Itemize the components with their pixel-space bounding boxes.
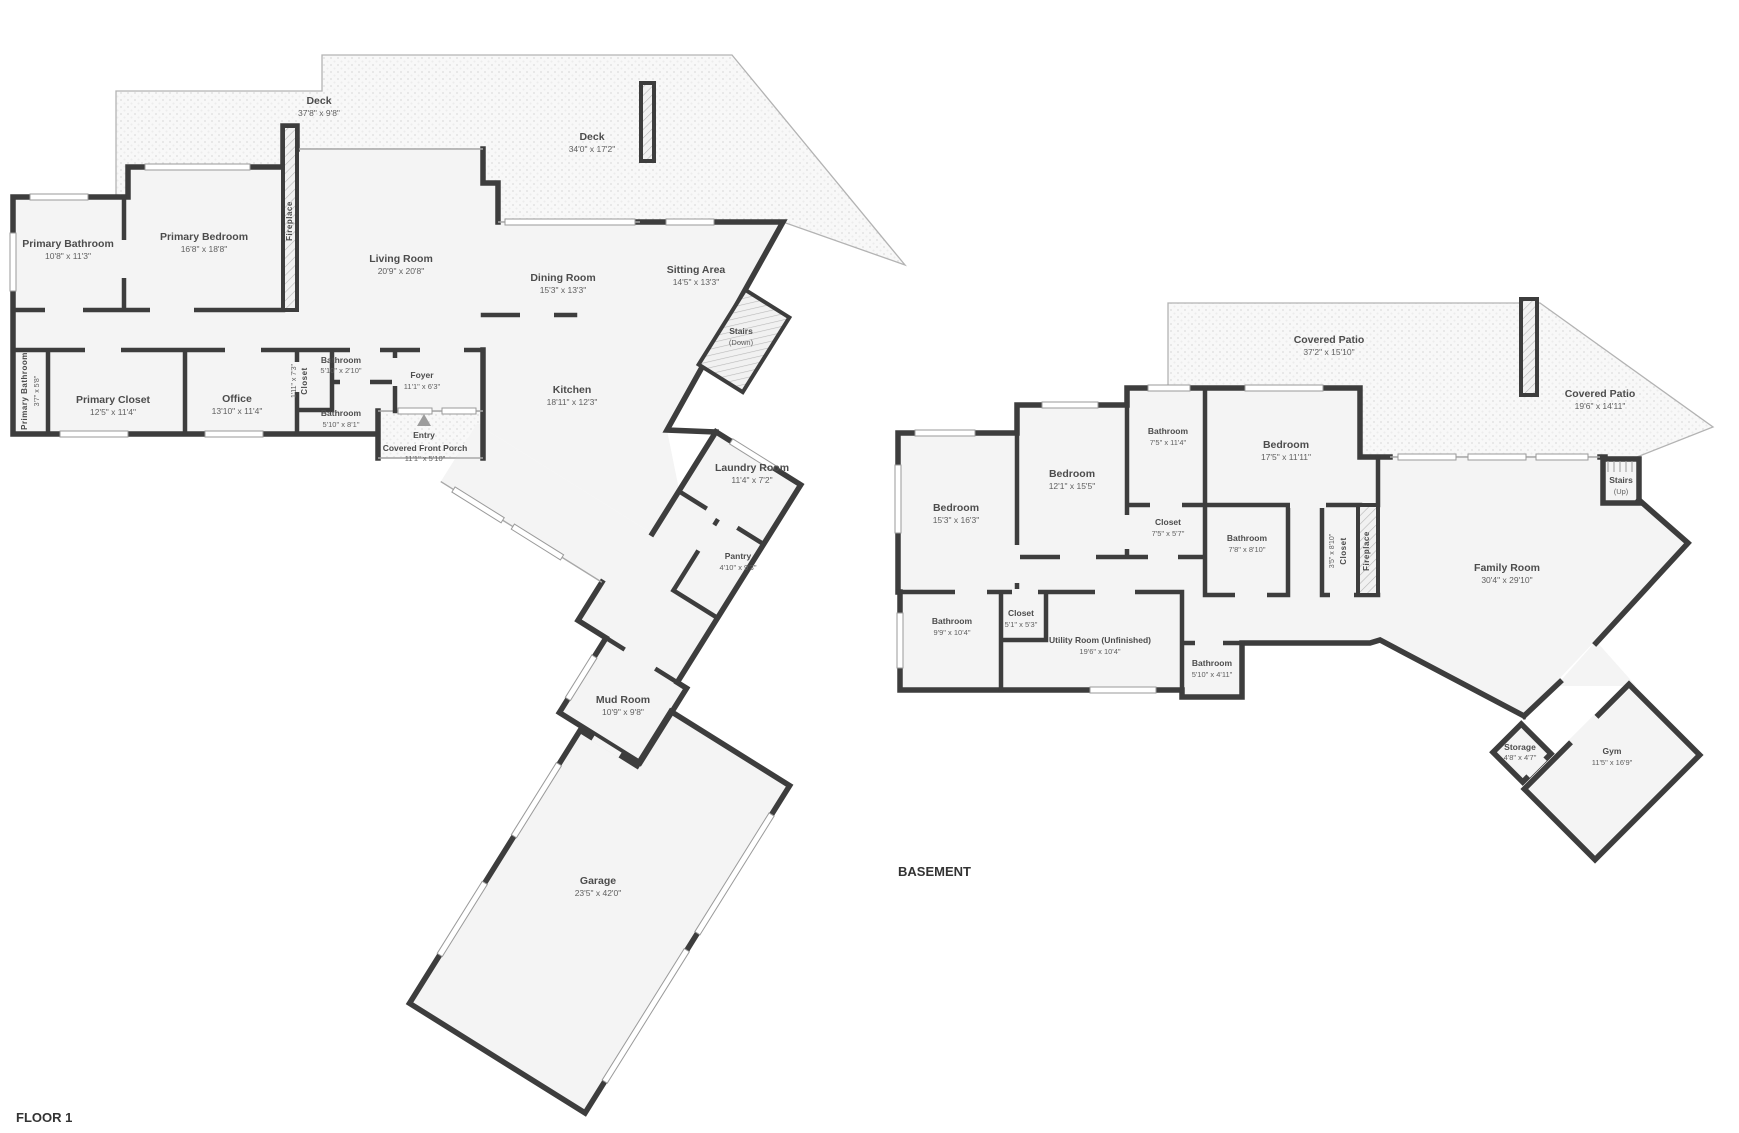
svg-text:Dining Room: Dining Room	[530, 272, 595, 284]
svg-text:15'3" x 16'3": 15'3" x 16'3"	[933, 515, 980, 525]
svg-text:30'4" x 29'10": 30'4" x 29'10"	[1481, 575, 1532, 585]
label-basement-bedroom-2: Bedroom 12'1" x 15'5"	[1049, 468, 1096, 491]
svg-text:4'8" x 4'7": 4'8" x 4'7"	[1504, 753, 1537, 762]
svg-text:Covered Patio: Covered Patio	[1565, 388, 1636, 400]
label-basement-family-room: Family Room 30'4" x 29'10"	[1474, 562, 1540, 585]
basement-title: BASEMENT	[898, 864, 971, 879]
svg-text:37'8" x 9'8": 37'8" x 9'8"	[298, 108, 340, 118]
svg-text:34'0" x 17'2": 34'0" x 17'2"	[569, 144, 616, 154]
label-basement-bedroom-3: Bedroom 17'5" x 11'11"	[1261, 439, 1311, 462]
gym-room	[1522, 682, 1699, 859]
basement-plan: Covered Patio 37'2" x 15'10" Covered Pat…	[895, 299, 1713, 860]
svg-text:Closet: Closet	[1339, 537, 1348, 564]
svg-text:Utility Room (Unfinished): Utility Room (Unfinished)	[1049, 635, 1151, 645]
svg-text:Covered Front Porch: Covered Front Porch	[383, 443, 468, 453]
floor1-title: FLOOR 1	[16, 1110, 72, 1125]
svg-text:17'5" x 11'11": 17'5" x 11'11"	[1261, 452, 1311, 462]
svg-text:11'1" x 6'3": 11'1" x 6'3"	[404, 382, 441, 391]
svg-text:Bedroom: Bedroom	[933, 502, 979, 514]
svg-text:Deck: Deck	[579, 131, 604, 143]
svg-text:11'1" x 5'10": 11'1" x 5'10"	[405, 454, 446, 463]
svg-text:16'8" x 18'8": 16'8" x 18'8"	[181, 244, 228, 254]
svg-text:23'5" x 42'0": 23'5" x 42'0"	[575, 888, 622, 898]
svg-text:7'8" x 8'10": 7'8" x 8'10"	[1229, 545, 1266, 554]
floorplan-page: Deck 37'8" x 9'8" Deck 34'0" x 17'2" Pri…	[0, 0, 1739, 1133]
label-floor1-sitting-area: Sitting Area 14'5" x 13'3"	[667, 264, 726, 287]
svg-text:(Down): (Down)	[729, 338, 754, 347]
svg-text:11'5" x 16'9": 11'5" x 16'9"	[1592, 758, 1633, 767]
floor1-plan: Deck 37'8" x 9'8" Deck 34'0" x 17'2" Pri…	[10, 55, 932, 1115]
svg-text:Mud Room: Mud Room	[596, 694, 650, 706]
svg-text:5'1" x 5'3": 5'1" x 5'3"	[1005, 620, 1038, 629]
svg-text:7'5" x 5'7": 7'5" x 5'7"	[1152, 529, 1185, 538]
svg-text:7'5" x 11'4": 7'5" x 11'4"	[1150, 438, 1187, 447]
svg-text:10'8" x 11'3": 10'8" x 11'3"	[45, 251, 91, 261]
label-floor1-dining-room: Dining Room 15'3" x 13'3"	[530, 272, 595, 295]
svg-text:Bathroom: Bathroom	[1227, 533, 1268, 543]
svg-text:13'10" x 11'4": 13'10" x 11'4"	[212, 406, 263, 416]
svg-text:Living Room: Living Room	[369, 253, 433, 265]
svg-text:Office: Office	[222, 393, 252, 405]
svg-text:Closet: Closet	[1155, 517, 1181, 527]
svg-text:Primary Bathroom: Primary Bathroom	[20, 352, 29, 430]
svg-text:Fireplace: Fireplace	[285, 201, 294, 241]
svg-text:Laundry Room: Laundry Room	[715, 462, 789, 474]
svg-text:20'9" x 20'8": 20'9" x 20'8"	[378, 266, 425, 276]
svg-text:(Up): (Up)	[1614, 487, 1629, 496]
svg-text:Garage: Garage	[580, 875, 616, 887]
svg-text:10'9" x 9'8": 10'9" x 9'8"	[602, 707, 644, 717]
svg-text:Foyer: Foyer	[410, 370, 434, 380]
svg-text:Entry: Entry	[413, 430, 435, 440]
chimney	[641, 83, 654, 161]
svg-text:Bedroom: Bedroom	[1263, 439, 1309, 451]
chimney-basement	[1521, 299, 1537, 395]
svg-text:Closet: Closet	[300, 367, 309, 394]
label-basement-fireplace: Fireplace	[1362, 531, 1371, 571]
svg-text:5'10" x 8'1": 5'10" x 8'1"	[323, 420, 360, 429]
svg-text:Sitting Area: Sitting Area	[667, 264, 726, 276]
svg-text:14'5" x 13'3": 14'5" x 13'3"	[673, 277, 720, 287]
svg-text:Fireplace: Fireplace	[1362, 531, 1371, 571]
svg-text:1'11" x 7'3": 1'11" x 7'3"	[291, 363, 298, 397]
svg-text:Bedroom: Bedroom	[1049, 468, 1095, 480]
svg-text:Bathroom: Bathroom	[321, 355, 362, 365]
svg-text:Gym: Gym	[1603, 746, 1622, 756]
label-floor1-garage: Garage 23'5" x 42'0"	[575, 875, 622, 898]
svg-text:Primary Bedroom: Primary Bedroom	[160, 231, 248, 243]
svg-text:Closet: Closet	[1008, 608, 1034, 618]
svg-text:9'9" x 10'4": 9'9" x 10'4"	[934, 628, 971, 637]
svg-text:Bathroom: Bathroom	[1192, 658, 1233, 668]
svg-text:3'7" x 5'8": 3'7" x 5'8"	[34, 375, 41, 406]
svg-text:19'6" x 14'11": 19'6" x 14'11"	[1575, 401, 1626, 411]
svg-text:15'3" x 13'3": 15'3" x 13'3"	[540, 285, 587, 295]
label-basement-covered-patio-1: Covered Patio 37'2" x 15'10"	[1294, 334, 1365, 357]
svg-text:18'11" x 12'3": 18'11" x 12'3"	[547, 397, 598, 407]
svg-text:Bathroom: Bathroom	[321, 408, 362, 418]
svg-text:Pantry: Pantry	[725, 551, 752, 561]
label-floor1-entry: Entry	[413, 430, 435, 440]
svg-text:Primary Closet: Primary Closet	[76, 394, 151, 406]
svg-text:4'10" x 9'3": 4'10" x 9'3"	[720, 563, 757, 572]
svg-text:5'10" x 4'11": 5'10" x 4'11"	[1192, 670, 1233, 679]
label-floor1-mud-room: Mud Room 10'9" x 9'8"	[596, 694, 650, 717]
svg-text:3'5" x 8'10": 3'5" x 8'10"	[1329, 533, 1336, 568]
label-floor1-fireplace: Fireplace	[285, 201, 294, 241]
label-floor1-closet: Closet 1'11" x 7'3"	[291, 363, 309, 397]
label-basement-closet-2: Closet 3'5" x 8'10"	[1329, 533, 1348, 568]
svg-text:Primary Bathroom: Primary Bathroom	[22, 238, 114, 250]
svg-text:11'4" x 7'2": 11'4" x 7'2"	[731, 475, 772, 485]
svg-text:Storage: Storage	[1504, 742, 1536, 752]
svg-text:Stairs: Stairs	[729, 326, 753, 336]
label-floor1-living-room: Living Room 20'9" x 20'8"	[369, 253, 433, 276]
svg-text:12'5" x 11'4": 12'5" x 11'4"	[90, 407, 136, 417]
svg-text:12'1" x 15'5": 12'1" x 15'5"	[1049, 481, 1096, 491]
svg-text:37'2" x 15'10": 37'2" x 15'10"	[1303, 347, 1354, 357]
label-basement-covered-patio-2: Covered Patio 19'6" x 14'11"	[1565, 388, 1636, 411]
svg-text:Deck: Deck	[306, 95, 331, 107]
label-floor1-kitchen: Kitchen 18'11" x 12'3"	[547, 384, 598, 407]
floorplan-image: Deck 37'8" x 9'8" Deck 34'0" x 17'2" Pri…	[0, 0, 1739, 1133]
svg-text:19'6" x 10'4": 19'6" x 10'4"	[1079, 647, 1120, 656]
svg-text:5'10" x 2'10": 5'10" x 2'10"	[320, 366, 361, 375]
svg-text:Stairs: Stairs	[1609, 475, 1633, 485]
svg-text:Covered Patio: Covered Patio	[1294, 334, 1365, 346]
svg-text:Bathroom: Bathroom	[932, 616, 973, 626]
label-basement-bedroom-1: Bedroom 15'3" x 16'3"	[933, 502, 980, 525]
svg-text:Bathroom: Bathroom	[1148, 426, 1189, 436]
svg-text:Family Room: Family Room	[1474, 562, 1540, 574]
svg-text:Kitchen: Kitchen	[553, 384, 592, 396]
